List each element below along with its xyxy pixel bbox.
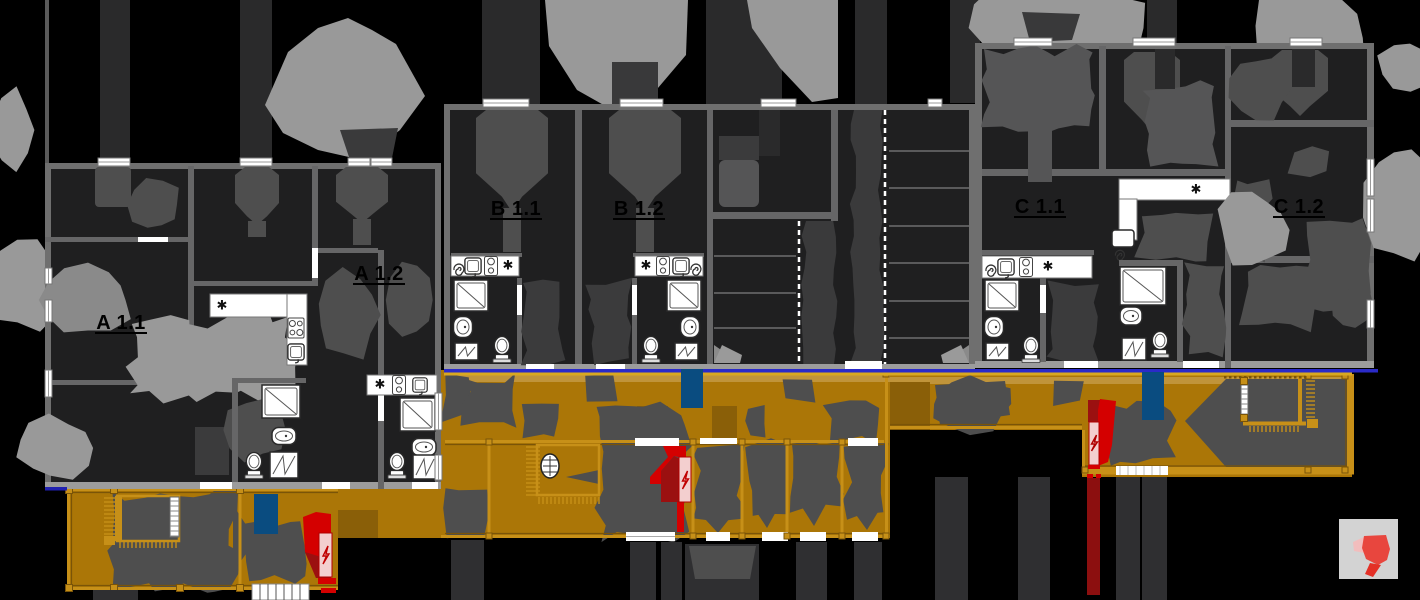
svg-text:✱: ✱: [217, 298, 228, 313]
svg-text:✱: ✱: [641, 258, 652, 273]
svg-text:B 1.2: B 1.2: [614, 198, 664, 220]
svg-text:✱: ✱: [1043, 259, 1054, 274]
svg-text:C 1.1: C 1.1: [1015, 196, 1065, 218]
svg-text:C 1.2: C 1.2: [1274, 196, 1324, 218]
svg-text:B 1.1: B 1.1: [491, 198, 541, 220]
svg-text:A 1.2: A 1.2: [354, 263, 404, 285]
svg-text:✱: ✱: [1191, 182, 1202, 197]
svg-text:✱: ✱: [503, 258, 514, 273]
svg-text:✱: ✱: [375, 377, 386, 392]
svg-text:A 1.1: A 1.1: [96, 312, 146, 334]
